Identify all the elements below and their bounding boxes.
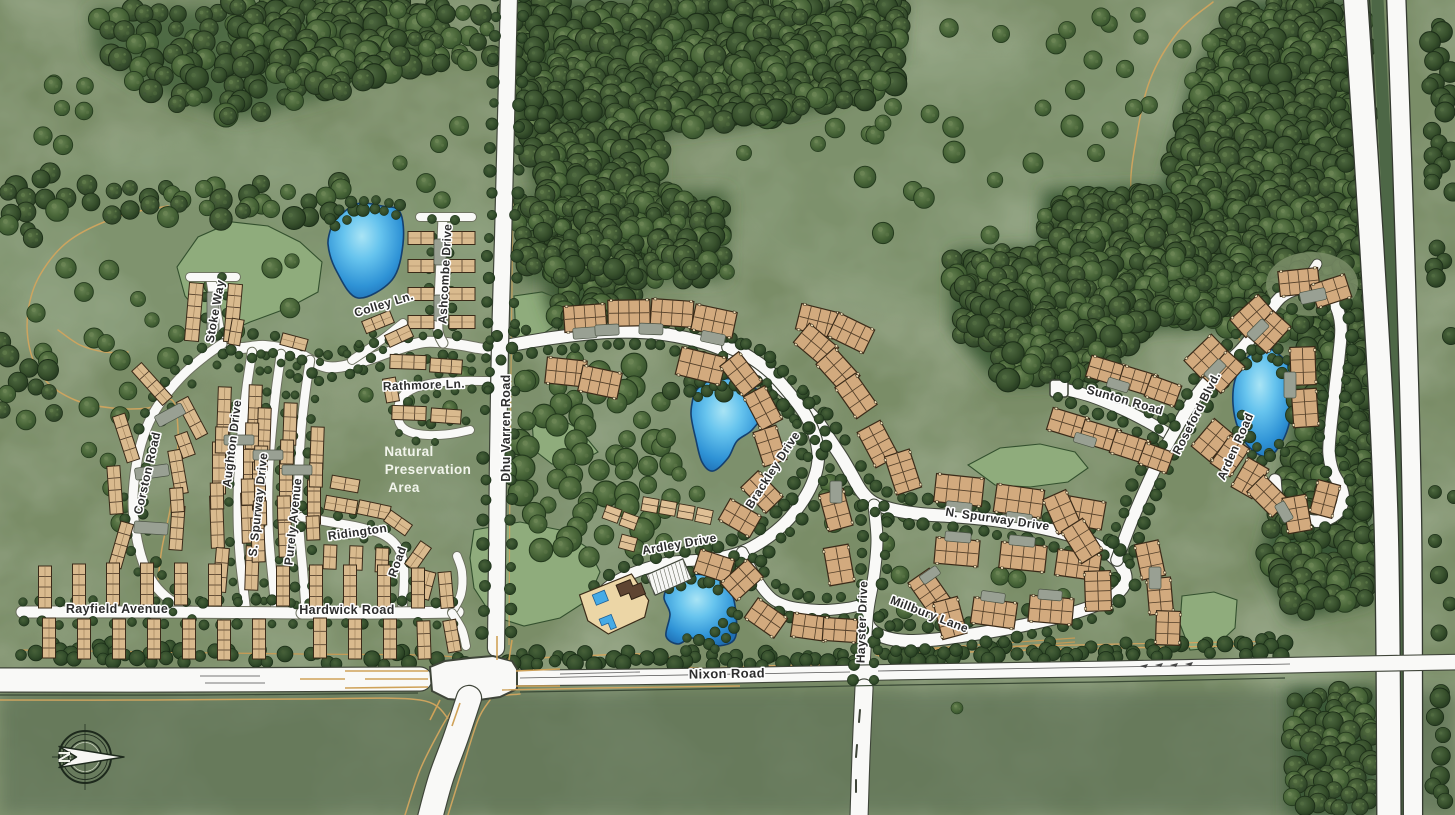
svg-text:Area: Area <box>388 480 420 495</box>
svg-text:Nixon Road: Nixon Road <box>689 665 765 681</box>
svg-text:Natural: Natural <box>384 444 433 459</box>
svg-text:Preservation: Preservation <box>385 462 472 477</box>
svg-text:N: N <box>55 751 74 763</box>
svg-text:Rayfield Avenue: Rayfield Avenue <box>66 602 168 616</box>
svg-text:Hardwick Road: Hardwick Road <box>299 603 395 617</box>
svg-text:Rathmore Ln.: Rathmore Ln. <box>383 377 466 394</box>
svg-text:Hayster Drive: Hayster Drive <box>854 580 871 663</box>
svg-text:Dhu Varren Road: Dhu Varren Road <box>499 374 513 481</box>
